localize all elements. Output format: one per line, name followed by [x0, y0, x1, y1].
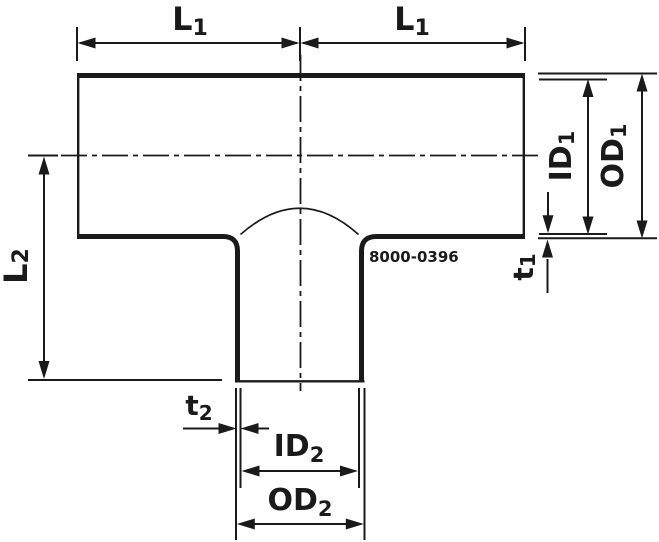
dim-t1: [542, 192, 554, 293]
run-bottom-left-and-branch-left-wall: [77, 237, 238, 382]
arrowhead-left: [78, 38, 96, 49]
label-od2: OD2: [267, 483, 332, 521]
arrowhead-down: [543, 215, 554, 233]
label-l1-left: L1: [172, 0, 208, 41]
arrowhead-down: [583, 217, 594, 235]
dimension-labels: L1 L1 L2 ID1 OD1 t1 t2 ID2 OD2 8000-0396: [0, 0, 631, 521]
arrowhead-right: [346, 519, 364, 530]
arrowhead-down: [637, 221, 648, 239]
label-id1: ID1: [544, 131, 580, 182]
technical-drawing-canvas: L1 L1 L2 ID1 OD1 t1 t2 ID2 OD2 8000-0396: [0, 0, 659, 542]
label-t2: t2: [185, 389, 212, 425]
arrowhead-right: [282, 38, 300, 49]
dim-l2: [28, 156, 222, 381]
label-l1-right: L1: [394, 0, 430, 41]
arrowhead-up: [583, 79, 594, 97]
label-id2: ID2: [274, 429, 325, 467]
tee-fitting-diagram: L1 L1 L2 ID1 OD1 t1 t2 ID2 OD2 8000-0396: [0, 0, 659, 542]
dim-t2: [183, 423, 269, 434]
label-od1: OD1: [596, 123, 632, 188]
arrowhead-left: [237, 519, 255, 530]
arrowhead-left: [301, 38, 319, 49]
arrowhead-right: [340, 466, 358, 477]
crotch-saddle-curve: [241, 208, 359, 234]
centerlines: [61, 55, 541, 391]
label-l2: L2: [0, 248, 35, 284]
arrowhead-right: [219, 423, 237, 434]
label-t1: t1: [507, 253, 541, 280]
arrowhead-up: [637, 74, 648, 92]
part-number: 8000-0396: [369, 248, 459, 266]
arrowhead-up: [39, 157, 50, 175]
arrowhead-left: [241, 423, 259, 434]
arrowhead-right: [507, 38, 525, 49]
arrowhead-left: [242, 466, 260, 477]
arrowhead-down: [39, 361, 50, 379]
arrowhead-up: [542, 240, 553, 258]
